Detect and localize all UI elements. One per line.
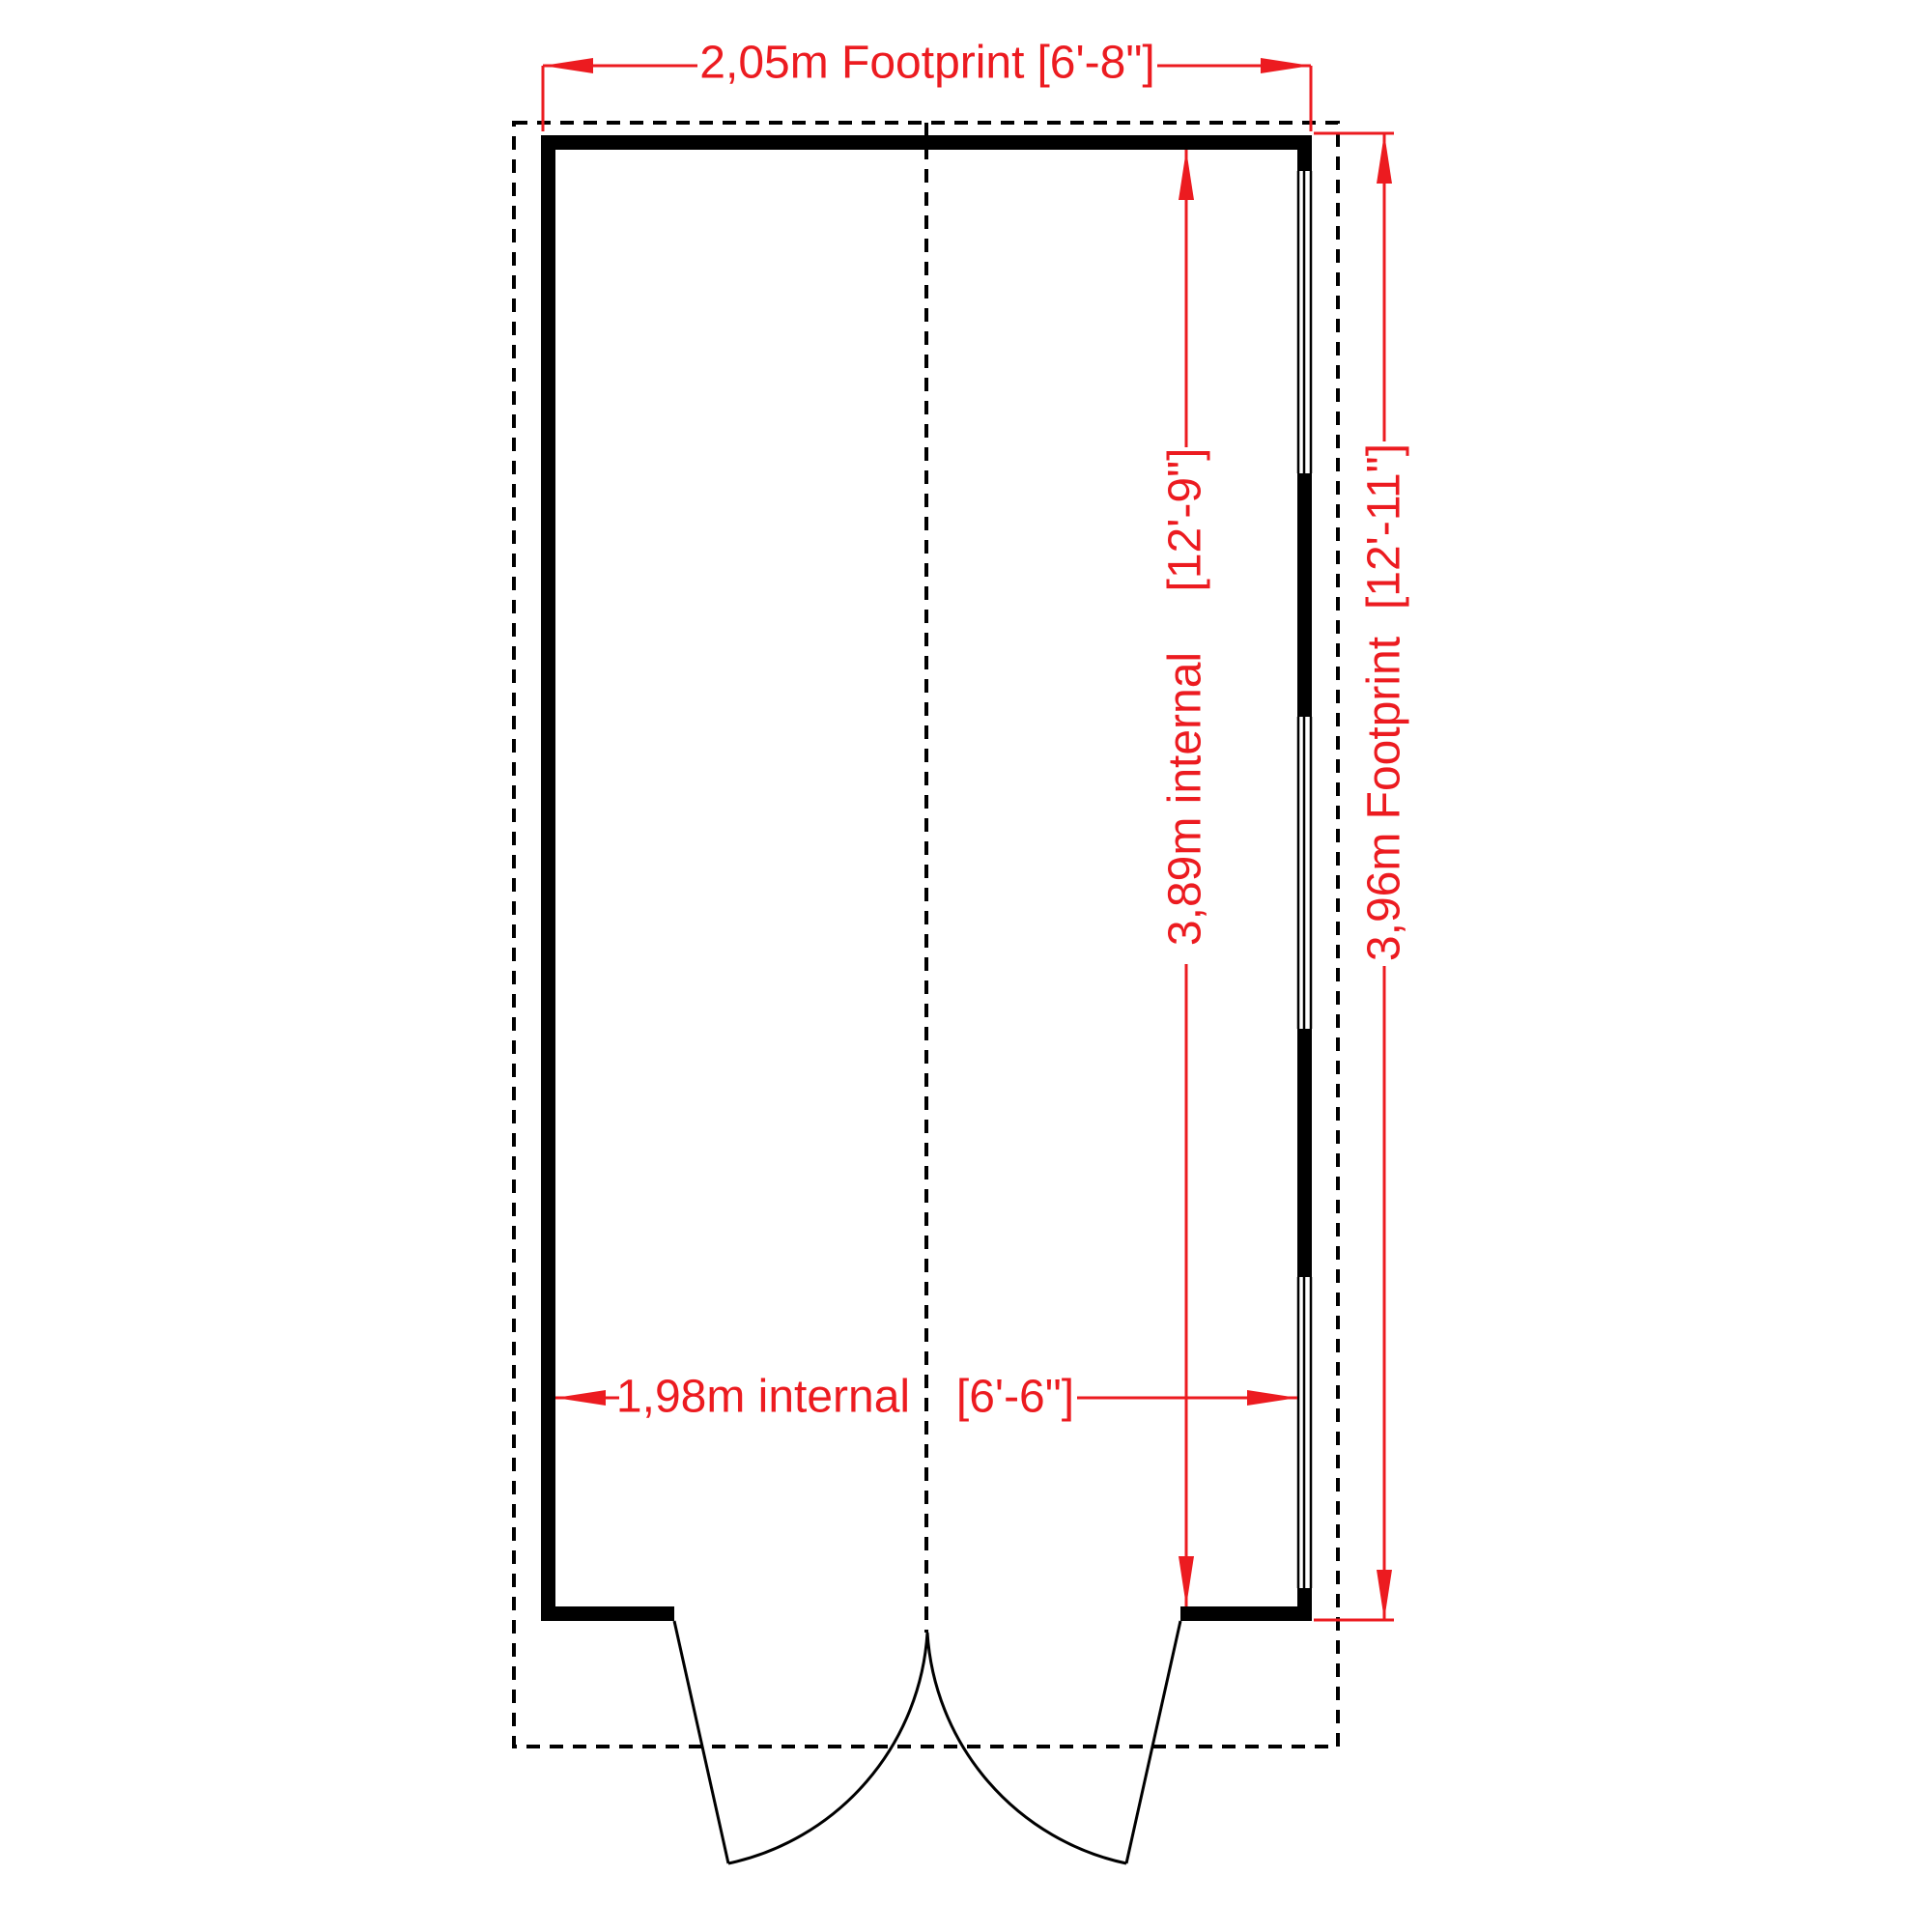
label-height-internal-metric: 3,89m internal [1161, 652, 1212, 946]
label-width-footprint-imperial: [6'-8"] [1037, 38, 1154, 89]
wall-left [541, 135, 555, 1621]
wall-right-segment-1 [1297, 135, 1312, 171]
arrow-left-icon [543, 58, 593, 73]
label-width-footprint-metric: 2,05m Footprint [699, 38, 1024, 89]
arrow-left-icon [555, 1390, 606, 1406]
double-doors [674, 1621, 1180, 1863]
wall-right-segment-2 [1297, 473, 1312, 717]
door-right [927, 1621, 1180, 1863]
arrow-up-icon [1179, 150, 1194, 200]
wall-right-segment-4 [1297, 1588, 1312, 1621]
wall-right-segment-3 [1297, 1029, 1312, 1277]
window-3 [1298, 1277, 1311, 1588]
wall-bottom-left [541, 1606, 674, 1621]
label-height-footprint-imperial: [12'-11"] [1360, 443, 1411, 610]
label-width-footprint: 2,05m Footprint[6'-8"] [699, 39, 1154, 90]
arrow-right-icon [1261, 58, 1311, 73]
arrow-right-icon [1247, 1390, 1297, 1406]
wall-bottom-right [1180, 1606, 1312, 1621]
label-width-internal-imperial: [6'-6"] [956, 1373, 1074, 1424]
arrow-down-icon [1377, 1570, 1392, 1620]
door-left [674, 1621, 927, 1863]
floor-plan-drawing [0, 0, 1932, 1932]
window-1 [1298, 171, 1311, 473]
window-2 [1298, 717, 1311, 1029]
door-right-leaf [1126, 1621, 1180, 1863]
windows [1298, 171, 1311, 1588]
wall-top [541, 135, 1312, 150]
floor-plan-canvas: 2,05m Footprint[6'-8"] 1,98m internal [6… [0, 0, 1932, 1932]
label-width-internal-metric: 1,98m internal [616, 1373, 910, 1424]
label-height-footprint-metric: 3,96m Footprint [1360, 637, 1411, 961]
door-left-leaf [674, 1621, 728, 1863]
arrow-up-icon [1377, 133, 1392, 184]
arrow-down-icon [1179, 1556, 1194, 1606]
label-height-internal-imperial: [12'-9"] [1161, 448, 1212, 592]
